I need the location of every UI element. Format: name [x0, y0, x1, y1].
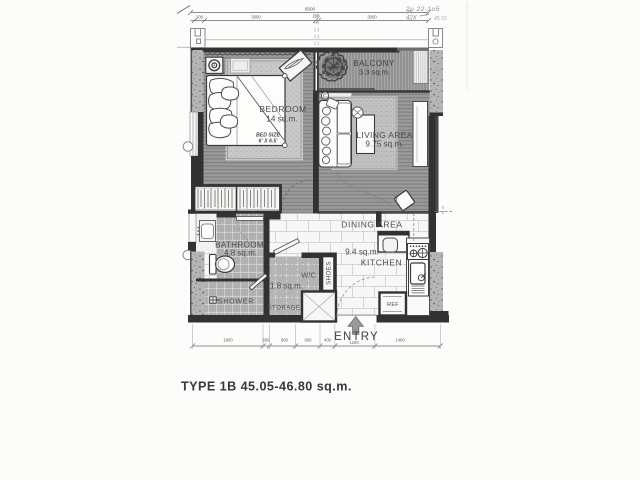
- svg-text:42X: 42X: [406, 16, 418, 22]
- svg-text:ENTRY: ENTRY: [334, 331, 379, 343]
- svg-text:REF: REF: [387, 302, 399, 308]
- svg-text:1900: 1900: [223, 338, 233, 343]
- svg-text:3000: 3000: [367, 15, 377, 20]
- svg-text:W/C: W/C: [301, 271, 316, 280]
- svg-text:3.3 sq.m.: 3.3 sq.m.: [359, 68, 390, 77]
- svg-text:LIVING AREA: LIVING AREA: [356, 130, 412, 140]
- svg-text:STORAGE: STORAGE: [268, 305, 301, 312]
- svg-text:DINING AREA: DINING AREA: [341, 220, 402, 230]
- svg-text:400: 400: [324, 338, 332, 343]
- svg-text:3000: 3000: [251, 15, 261, 20]
- svg-text:100: 100: [313, 14, 321, 19]
- svg-text:500: 500: [263, 338, 271, 343]
- svg-text:SHOES: SHOES: [326, 261, 333, 285]
- svg-text:BEDROOM: BEDROOM: [259, 104, 306, 114]
- svg-text:1400: 1400: [395, 338, 405, 343]
- svg-text:200: 200: [196, 15, 204, 20]
- svg-text:KITCHEN: KITCHEN: [361, 258, 403, 268]
- svg-text:4.8 sq.m.: 4.8 sq.m.: [224, 249, 257, 258]
- svg-text:6500: 6500: [305, 7, 316, 12]
- svg-text:860: 860: [281, 338, 289, 343]
- svg-text:TYPE 1B 45.05-46.80 sq.m.: TYPE 1B 45.05-46.80 sq.m.: [181, 380, 352, 394]
- svg-text:C: C: [323, 94, 327, 100]
- svg-text:14 sq.m.: 14 sq.m.: [266, 115, 297, 124]
- svg-text:SHOWER: SHOWER: [218, 299, 254, 306]
- svg-text:800: 800: [305, 338, 313, 343]
- svg-text:2u 22-1o5: 2u 22-1o5: [405, 6, 440, 13]
- svg-text:6' X 6.5': 6' X 6.5': [259, 139, 279, 145]
- svg-text:45.53: 45.53: [434, 16, 447, 22]
- svg-text:9.75 sq.m.: 9.75 sq.m.: [365, 140, 403, 149]
- svg-text:1.8 sq.m.: 1.8 sq.m.: [270, 282, 303, 291]
- svg-text:9.4 sq.m.: 9.4 sq.m.: [345, 248, 379, 257]
